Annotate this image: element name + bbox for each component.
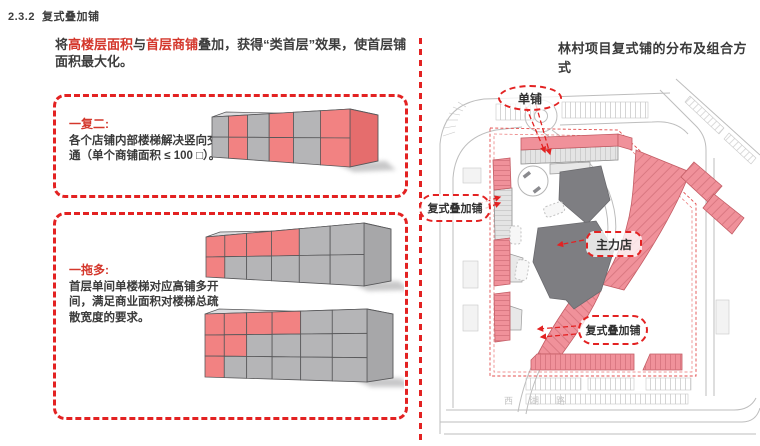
slide: { "header": { "number": "2.3.2", "title"…	[0, 0, 760, 446]
road-name-label: 西湖路	[504, 394, 582, 407]
map-label-duplex-bottom: 复式叠加铺	[578, 315, 648, 345]
site-plan-map	[438, 78, 760, 446]
map-label-single-shop: 单铺	[498, 85, 562, 111]
vertical-divider	[419, 38, 422, 440]
box1-text: 一复二: 各个店铺内部楼梯解决竖向交通（单个商铺面积 ≤ 100 □）。	[69, 117, 222, 165]
map-title: 林村项目复式铺的分布及组合方式	[558, 38, 760, 76]
map-label-anchor-store: 主力店	[586, 231, 642, 257]
map-label-duplex-left: 复式叠加铺	[419, 194, 491, 222]
section-heading: 2.3.2复式叠加铺	[8, 8, 99, 24]
intro-seg2: 与	[133, 37, 146, 52]
diagram-one-over-two	[204, 99, 400, 195]
diagram-one-pull-multi-upper	[198, 216, 404, 312]
intro-seg1: 将	[55, 37, 68, 52]
diagram-one-pull-multi-lower	[198, 301, 404, 403]
box1-heading: 一复二:	[69, 117, 222, 133]
intro-paragraph: 将高楼层面积与首层商铺叠加，获得“类首层”效果，使首层铺面积最大化。	[55, 36, 407, 70]
map-corner-hatching	[443, 102, 466, 136]
box1-body: 各个店铺内部楼梯解决竖向交通（单个商铺面积 ≤ 100 □）。	[69, 134, 222, 165]
section-title: 复式叠加铺	[42, 11, 100, 23]
section-number: 2.3.2	[8, 11, 35, 23]
highlight-ground-floor-shop: 首层商铺	[146, 37, 198, 52]
highlight-upper-floor-area: 高楼层面积	[68, 37, 133, 52]
